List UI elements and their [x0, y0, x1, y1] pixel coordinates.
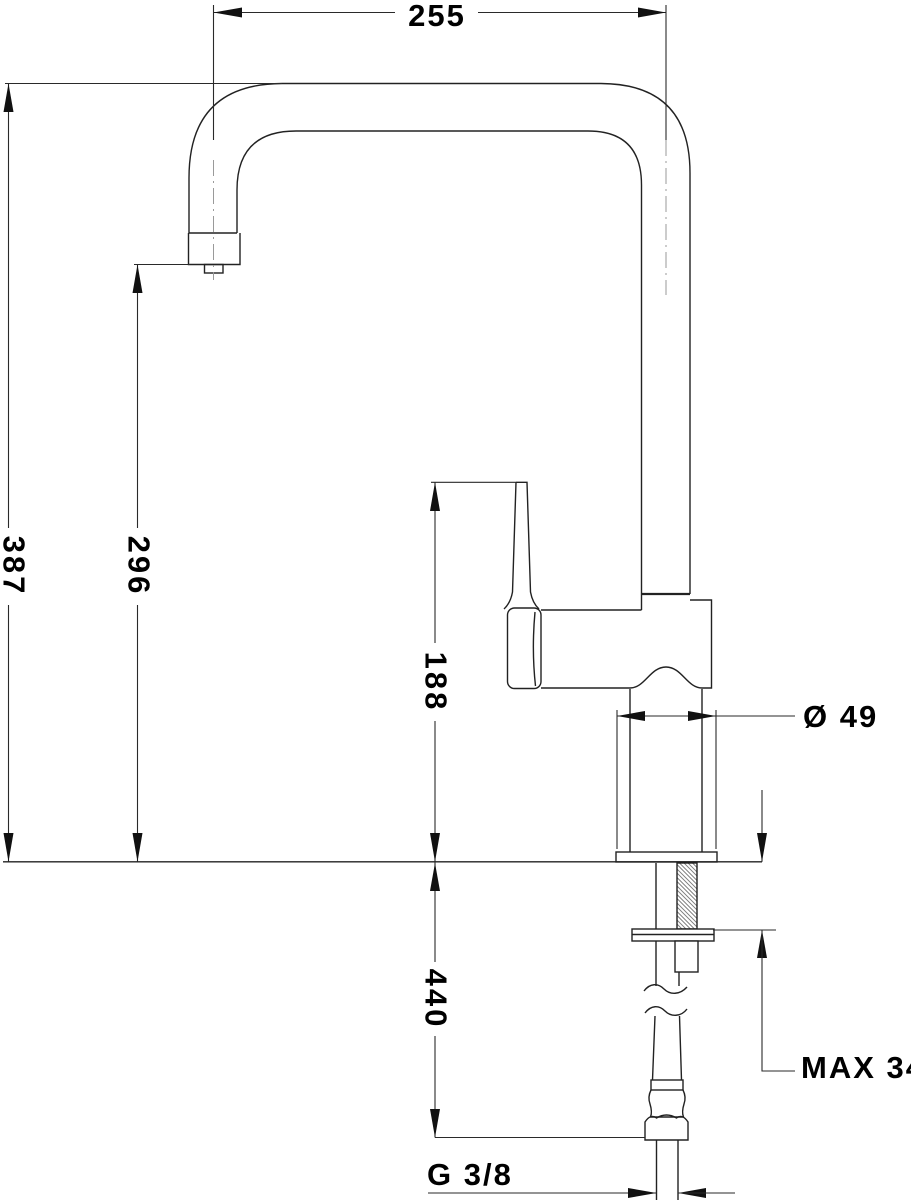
connector-collar	[651, 1080, 683, 1090]
dimension-387	[4, 84, 283, 862]
dimension-label-overall-height: 387	[0, 536, 30, 597]
mounting-washer	[632, 929, 714, 941]
centerlines	[214, 140, 667, 295]
body-saddle-curve	[630, 667, 702, 688]
base-flange	[616, 852, 717, 862]
pipe-break-lower-wave	[645, 1007, 687, 1016]
spout-inner-curve	[237, 131, 642, 610]
thread-end	[657, 1140, 679, 1200]
dimension-label-base-diameter: Ø 49	[803, 701, 878, 732]
handle-lever	[504, 482, 539, 609]
spout-tip	[189, 233, 241, 265]
pipe-break-upper-wave	[644, 985, 687, 994]
connector-nut	[645, 1115, 688, 1140]
faucet-outline	[189, 84, 718, 1200]
connector-bead	[649, 1090, 685, 1117]
dimension-label-spout-outlet-height: 296	[124, 536, 155, 597]
mounting-nut	[675, 941, 698, 972]
dimension-lines	[4, 5, 796, 1198]
supply-hose-lower	[653, 1016, 682, 1080]
handle-base	[508, 608, 542, 689]
faucet-dimension-drawing: 255 387 296 188 440 Ø 49 MAX 34 G 3/8	[0, 0, 911, 1200]
spout-outer-curve	[189, 84, 690, 595]
dimension-max34	[713, 790, 795, 1071]
dimension-label-spout-reach: 255	[408, 0, 466, 31]
drawing-linework	[0, 0, 911, 1200]
threaded-stud	[677, 863, 697, 929]
body	[541, 600, 712, 688]
dimension-label-max-counter-thickness: MAX 34	[801, 1052, 911, 1083]
dimension-dia49	[617, 710, 795, 849]
dimension-label-body-height: 188	[421, 652, 452, 713]
dimension-label-thread-size: G 3/8	[427, 1159, 513, 1190]
body-endcap-curve	[533, 612, 535, 686]
dimension-label-hose-length: 440	[421, 969, 452, 1030]
dimension-440	[430, 862, 645, 1138]
